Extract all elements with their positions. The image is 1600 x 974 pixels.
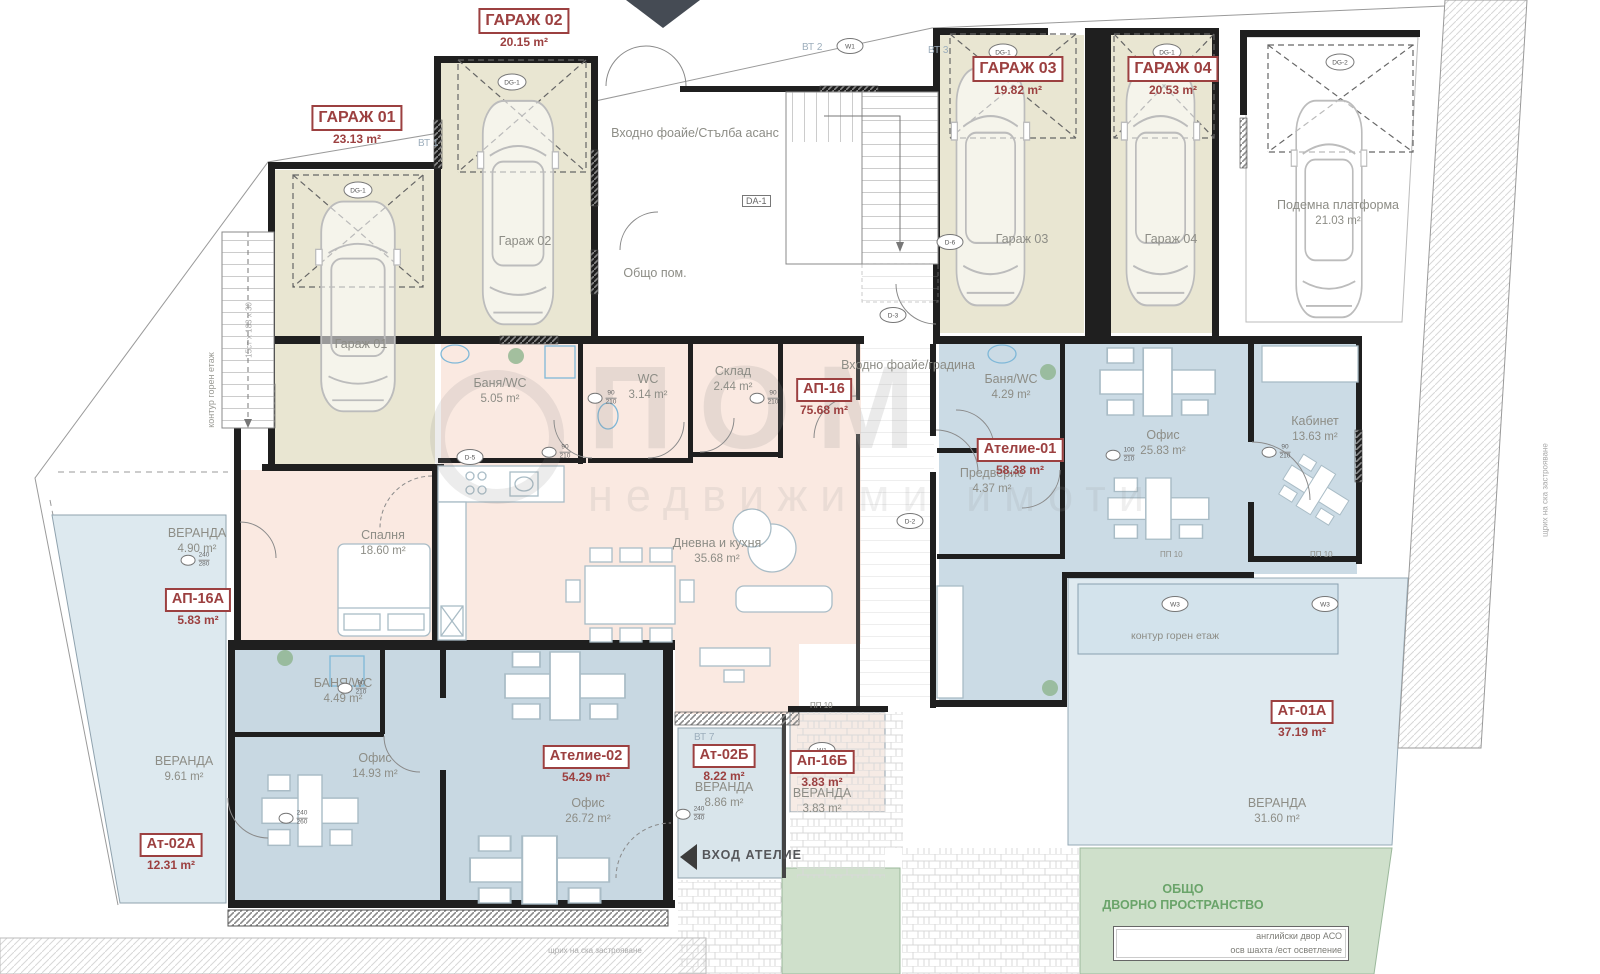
annotation-right-hatch-note: щрих на ска застрояване bbox=[1541, 443, 1550, 537]
room-label-veranda-961: ВЕРАНДА9.61 m² bbox=[155, 754, 213, 784]
room-label-living: Дневна и кухня35.68 m² bbox=[673, 536, 762, 566]
annotation-stair-note: 15ст x 183 x 30 bbox=[245, 302, 254, 358]
room-label-common: Общо пом. bbox=[623, 266, 686, 282]
svg-text:D-5: D-5 bbox=[465, 455, 476, 462]
staircase-main bbox=[786, 92, 938, 302]
room-label-garage01: Гараж 01 bbox=[335, 337, 388, 353]
unit-label-atelie01: Ателие-01 58.38 m² bbox=[977, 438, 1064, 477]
room-label-bedroom: Спалня18.60 m² bbox=[360, 528, 405, 558]
annotation-english-yard: английски двор АСО осв шахта /ест осветл… bbox=[1113, 926, 1349, 961]
door-dimension-tag: 90210 bbox=[542, 444, 571, 461]
svg-text:W1: W1 bbox=[845, 44, 855, 51]
room-label-bath2: Баня/WC4.29 m² bbox=[984, 372, 1037, 402]
window-dimension-tag: 240280 bbox=[181, 552, 210, 569]
annotation-upper-floor-contour: контур горен етаж bbox=[1131, 630, 1219, 643]
floor-plan-drawing: DG-1 DG-1 DG-1 DG-1 DG-2 D-5 D-6 D-3 D-2… bbox=[0, 0, 1600, 974]
floor-plan: DG-1 DG-1 DG-1 DG-1 DG-2 D-5 D-6 D-3 D-2… bbox=[0, 0, 1600, 974]
svg-text:DG-1: DG-1 bbox=[350, 188, 366, 195]
tag-pp10: ПП 10 bbox=[810, 701, 833, 710]
room-label-office3: Офис26.72 m² bbox=[565, 796, 610, 826]
unit-label-ap16: АП-16 75.68 m² bbox=[796, 378, 852, 417]
tag-vt7: ВТ 7 bbox=[694, 732, 714, 743]
room-label-cabinet: Кабинет13.63 m² bbox=[1291, 414, 1339, 444]
room-label-office2: Офис14.93 m² bbox=[352, 751, 397, 781]
window-dimension-tag: 240240 bbox=[676, 806, 705, 823]
tag-vt3: ВТ 3 bbox=[928, 45, 948, 56]
svg-text:D-6: D-6 bbox=[945, 240, 956, 247]
room-label-bath1: Баня/WC5.05 m² bbox=[473, 376, 526, 406]
door-dimension-tag: 90210 bbox=[338, 680, 367, 697]
room-label-office1: Офис25.83 m² bbox=[1140, 428, 1185, 458]
unit-label-garage01: ГАРАЖ 01 23.13 m² bbox=[311, 105, 402, 146]
room-label-veranda-3160: ВЕРАНДА31.60 m² bbox=[1248, 796, 1306, 826]
tag-pp10: ПП 10 bbox=[1310, 550, 1333, 559]
tag-vt2: ВТ 2 bbox=[802, 42, 822, 53]
room-label-entry-garden: Входно фоайе/градина bbox=[841, 358, 975, 374]
entrance-pointer-icon bbox=[626, 0, 700, 28]
car-icon bbox=[1121, 68, 1199, 305]
unit-label-at01a: Ат-01А 37.19 m² bbox=[1271, 700, 1334, 739]
unit-label-garage02: ГАРАЖ 02 20.15 m² bbox=[478, 8, 569, 49]
door-dimension-tag: 90210 bbox=[588, 390, 617, 407]
unit-label-ap16a: АП-16А 5.83 m² bbox=[165, 588, 231, 627]
svg-text:D-2: D-2 bbox=[905, 519, 916, 526]
car-icon bbox=[316, 202, 401, 412]
svg-text:W3: W3 bbox=[1320, 602, 1330, 609]
room-label-garage02: Гараж 02 bbox=[499, 234, 552, 250]
svg-text:DG-2: DG-2 bbox=[1332, 60, 1348, 67]
annotation-atelier-entrance: ВХОД АТЕЛИЕ bbox=[702, 848, 802, 862]
unit-label-garage04: ГАРАЖ 04 20.53 m² bbox=[1127, 56, 1218, 97]
unit-label-at02a: Ат-02А 12.31 m² bbox=[140, 833, 203, 872]
tag-pp10: ПП 10 bbox=[1160, 550, 1183, 559]
room-label-entry-foyer: Входно фоайе/Стълба асанс bbox=[611, 126, 779, 142]
unit-label-ap16b: Ап-16Б 3.83 m² bbox=[790, 750, 855, 789]
door-dimension-tag: 90210 bbox=[1262, 444, 1291, 461]
annotation-hatch-note: щрих на ска застрояване bbox=[548, 946, 642, 956]
unit-label-atelie02: Ателие-02 54.29 m² bbox=[543, 745, 630, 784]
atelier-entrance-arrow-icon bbox=[680, 844, 697, 870]
car-icon bbox=[478, 101, 559, 324]
room-label-garage04: Гараж 04 bbox=[1145, 232, 1198, 248]
annotation-upper-floor-contour-left: контур горен етаж bbox=[206, 352, 216, 427]
door-dimension-tag: 90210 bbox=[750, 390, 779, 407]
svg-text:D-3: D-3 bbox=[888, 313, 899, 320]
svg-text:DG-1: DG-1 bbox=[504, 80, 520, 87]
unit-label-garage03: ГАРАЖ 03 19.82 m² bbox=[972, 56, 1063, 97]
window-dimension-tag: 240260 bbox=[279, 810, 308, 827]
door-dimension-tag: 100210 bbox=[1106, 447, 1135, 464]
annotation-yard: ОБЩОДВОРНО ПРОСТРАНСТВО bbox=[1102, 882, 1263, 913]
room-label-veranda-383: ВЕРАНДА3.83 m² bbox=[793, 786, 851, 816]
room-label-garage03: Гараж 03 bbox=[996, 232, 1049, 248]
unit-label-at02b: Ат-02Б 8.22 m² bbox=[693, 744, 756, 783]
room-label-wc: WC3.14 m² bbox=[629, 372, 668, 402]
tag-da1: DA-1 bbox=[742, 195, 771, 207]
room-label-platform: Подемна платформа21.03 m² bbox=[1277, 198, 1399, 228]
room-label-storage: Склад2.44 m² bbox=[714, 364, 753, 394]
svg-text:W3: W3 bbox=[1170, 602, 1180, 609]
car-icon bbox=[951, 68, 1029, 305]
tag-vt1: ВТ 1 bbox=[418, 138, 438, 149]
